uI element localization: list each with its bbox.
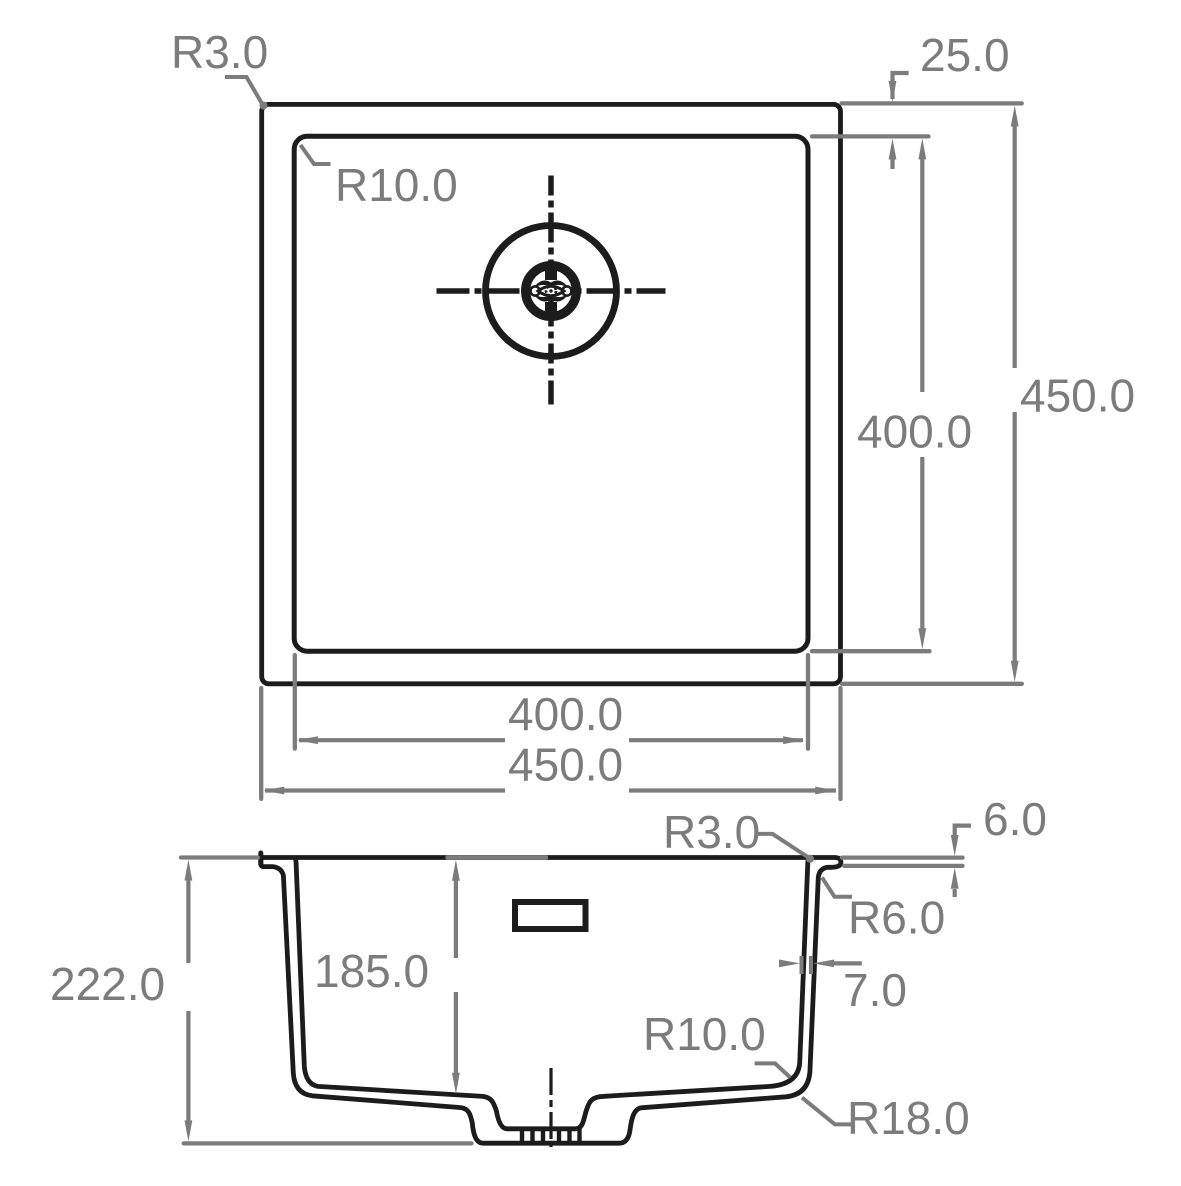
svg-text:R10.0: R10.0	[335, 159, 458, 211]
svg-text:R18.0: R18.0	[847, 1092, 970, 1144]
svg-text:R6.0: R6.0	[848, 892, 945, 944]
svg-text:450.0: 450.0	[1020, 370, 1135, 422]
svg-text:R3.0: R3.0	[171, 26, 268, 78]
svg-text:6.0: 6.0	[983, 793, 1047, 845]
svg-text:R3.0: R3.0	[663, 806, 760, 858]
svg-text:222.0: 222.0	[50, 958, 165, 1010]
svg-text:400.0: 400.0	[508, 688, 623, 740]
svg-text:25.0: 25.0	[920, 29, 1010, 81]
svg-text:400.0: 400.0	[857, 406, 972, 458]
svg-text:7.0: 7.0	[843, 964, 907, 1016]
svg-text:185.0: 185.0	[314, 945, 429, 997]
svg-text:450.0: 450.0	[508, 739, 623, 791]
svg-text:R10.0: R10.0	[643, 1008, 766, 1060]
